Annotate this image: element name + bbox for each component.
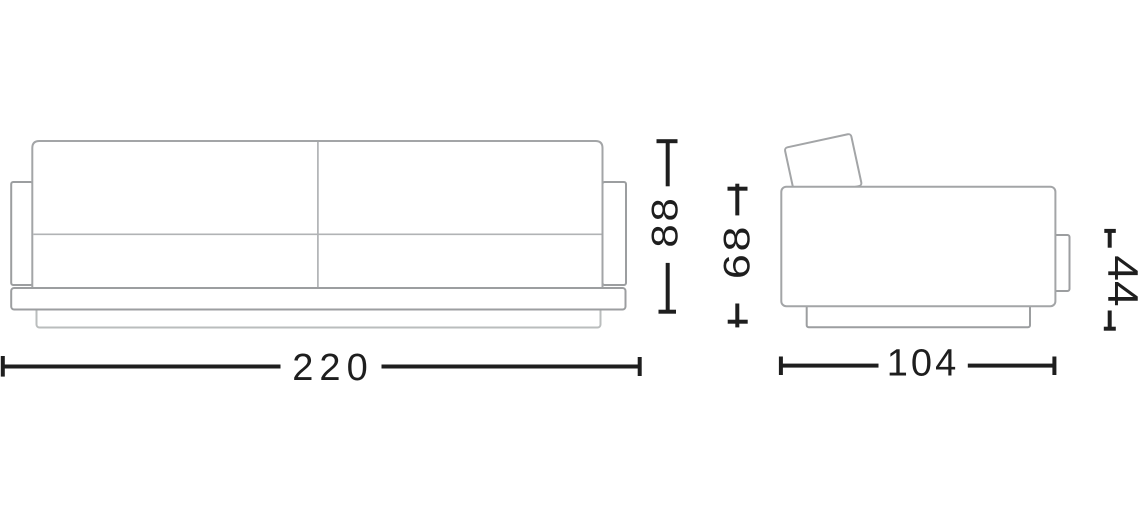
svg-text:220: 220 <box>292 347 373 389</box>
svg-text:68: 68 <box>716 224 757 279</box>
svg-text:88: 88 <box>645 195 686 247</box>
svg-text:104: 104 <box>887 342 959 384</box>
svg-text:44: 44 <box>1099 255 1146 306</box>
